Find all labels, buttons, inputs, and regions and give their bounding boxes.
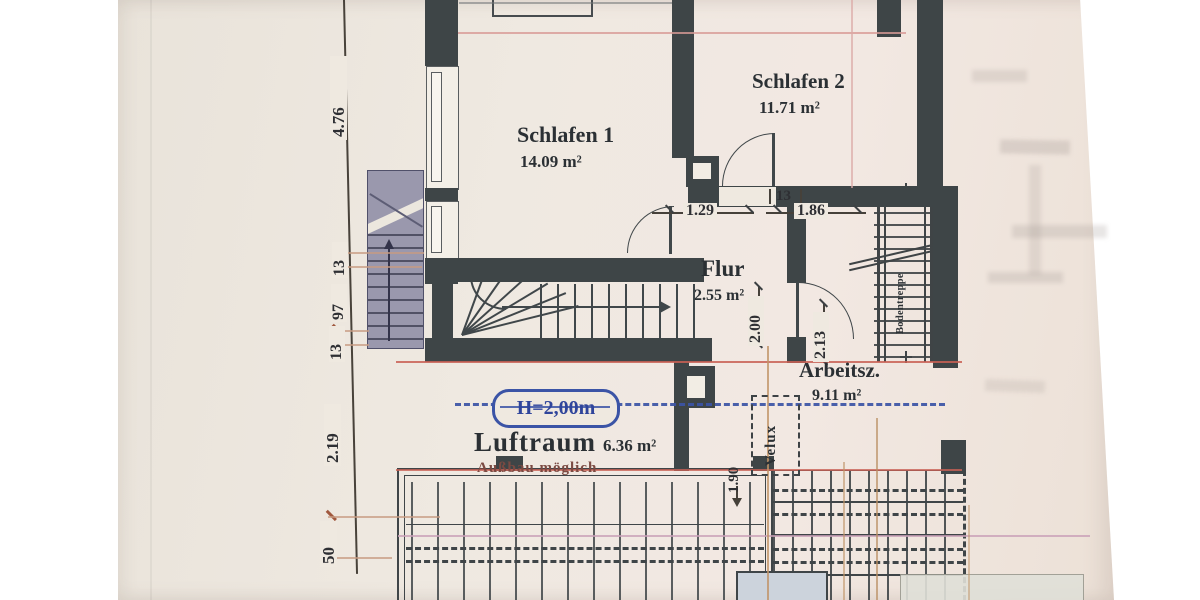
ladder-rail <box>924 188 926 362</box>
ladder-rail <box>877 188 880 362</box>
dim-opening-13: 13 <box>776 189 791 204</box>
floorplan-scan: Bodentreppe H=2,00m <box>0 0 1200 600</box>
deck-right-dashed-row <box>773 513 963 516</box>
ghost-smudge <box>988 272 1063 283</box>
wall-room-divider <box>672 0 694 158</box>
dim-velux-arrowhead <box>732 498 742 507</box>
room-area-arbeitszimmer: 9.11 m² <box>812 388 861 404</box>
stair-lower-treads <box>368 223 423 348</box>
deck-left-rail-line <box>406 524 764 525</box>
window-left-upper-sash <box>431 72 442 182</box>
room-label-schlafen2: Schlafen 2 <box>752 71 845 92</box>
dormer-box <box>736 571 828 600</box>
deck-right-dashed-row <box>773 489 963 492</box>
fold-line-orange <box>843 462 845 600</box>
roof-line-top <box>458 32 906 34</box>
dim-flur-depth: 2.00 <box>748 296 764 346</box>
dim-extension <box>328 516 440 518</box>
wall-left-top <box>425 0 458 66</box>
dim-opening-186: 1.86 <box>794 203 828 219</box>
fold-line-orange <box>876 418 878 600</box>
room-label-arbeitszimmer: Arbeitsz. <box>799 360 880 381</box>
height-marker-label: H=2,00m <box>495 398 617 418</box>
wall-stairwell-bottom <box>425 338 712 362</box>
lower-roof-panel <box>900 574 1084 600</box>
room-label-luftraum: Luftraum <box>474 429 596 456</box>
ladder-rail <box>884 188 886 362</box>
ghost-smudge <box>972 70 1027 82</box>
wall-right-upper <box>917 0 943 192</box>
ausbau-note: Außbau möglich <box>477 461 597 476</box>
dim-left-13-upper: 13 <box>332 242 348 278</box>
height-marker-stadium: H=2,00m <box>492 389 620 428</box>
stairs-walkline <box>502 306 662 308</box>
dim-extension <box>336 266 422 268</box>
ghost-smudge <box>1000 139 1070 154</box>
room-area-luftraum: 6.36 m² <box>603 437 656 454</box>
deck-left <box>397 468 773 600</box>
deck-right-dashed-row <box>773 561 963 564</box>
door-opening-flur-top <box>719 187 776 206</box>
deck-left-boards <box>411 482 763 600</box>
ridge-line-vertical <box>851 0 853 188</box>
wall-stairwell-left <box>432 284 453 338</box>
pillar-lower-core <box>687 376 705 398</box>
door-leaf-schlafen2 <box>772 133 775 187</box>
room-label-schlafen1: Schlafen 1 <box>517 124 614 146</box>
door-leaf-arbeitszimmer <box>796 282 799 339</box>
deck-right-dashed-row <box>773 548 963 551</box>
ghost-smudge <box>985 379 1045 393</box>
deck-left-dashed-row <box>406 547 764 550</box>
roof-line-lower <box>398 535 1090 537</box>
ghost-smudge <box>1012 225 1107 238</box>
wall-schlafen1-bottom <box>444 258 704 282</box>
dim-left-total: 4.76 <box>330 56 347 140</box>
dim-velux-height: 1.90 <box>727 443 742 495</box>
pillar-upper-core <box>693 163 711 179</box>
stair-lower-flight <box>367 170 424 349</box>
dim-arbeitsz-width: 2.13 <box>813 312 829 362</box>
velux-label: Velux <box>764 402 779 466</box>
ladder-label: Bodentreppe <box>896 222 907 334</box>
window-left-lower-sash <box>431 206 442 253</box>
dim-ext-tick <box>769 189 771 204</box>
dim-left-219: 2.19 <box>324 404 341 466</box>
fold-line-orange <box>968 505 970 600</box>
stair-walkline <box>388 249 390 341</box>
stair-walkline-arrow <box>384 239 394 249</box>
room-top-line <box>459 2 672 4</box>
deck-right-rail-line <box>773 501 963 503</box>
wall-left-sill <box>425 188 458 201</box>
deck-left-dashed-row <box>406 560 764 563</box>
ghost-smudge <box>1029 165 1041 275</box>
dim-left-97: 97 <box>331 284 347 322</box>
room-area-schlafen2: 11.71 m² <box>759 99 820 116</box>
dim-extension <box>336 252 424 254</box>
dim-left-13-lower: 13 <box>329 326 345 362</box>
wall-right-mid <box>933 186 958 368</box>
room-area-schlafen1: 14.09 m² <box>520 153 582 170</box>
paper-crease <box>150 0 152 600</box>
room-label-flur: Flur <box>701 257 744 280</box>
stairs-walkline-arrow <box>660 301 671 313</box>
room-area-flur: 2.55 m² <box>694 288 744 304</box>
dim-opening-129: 1.29 <box>683 203 717 219</box>
dim-left-50: 50 <box>320 521 337 567</box>
